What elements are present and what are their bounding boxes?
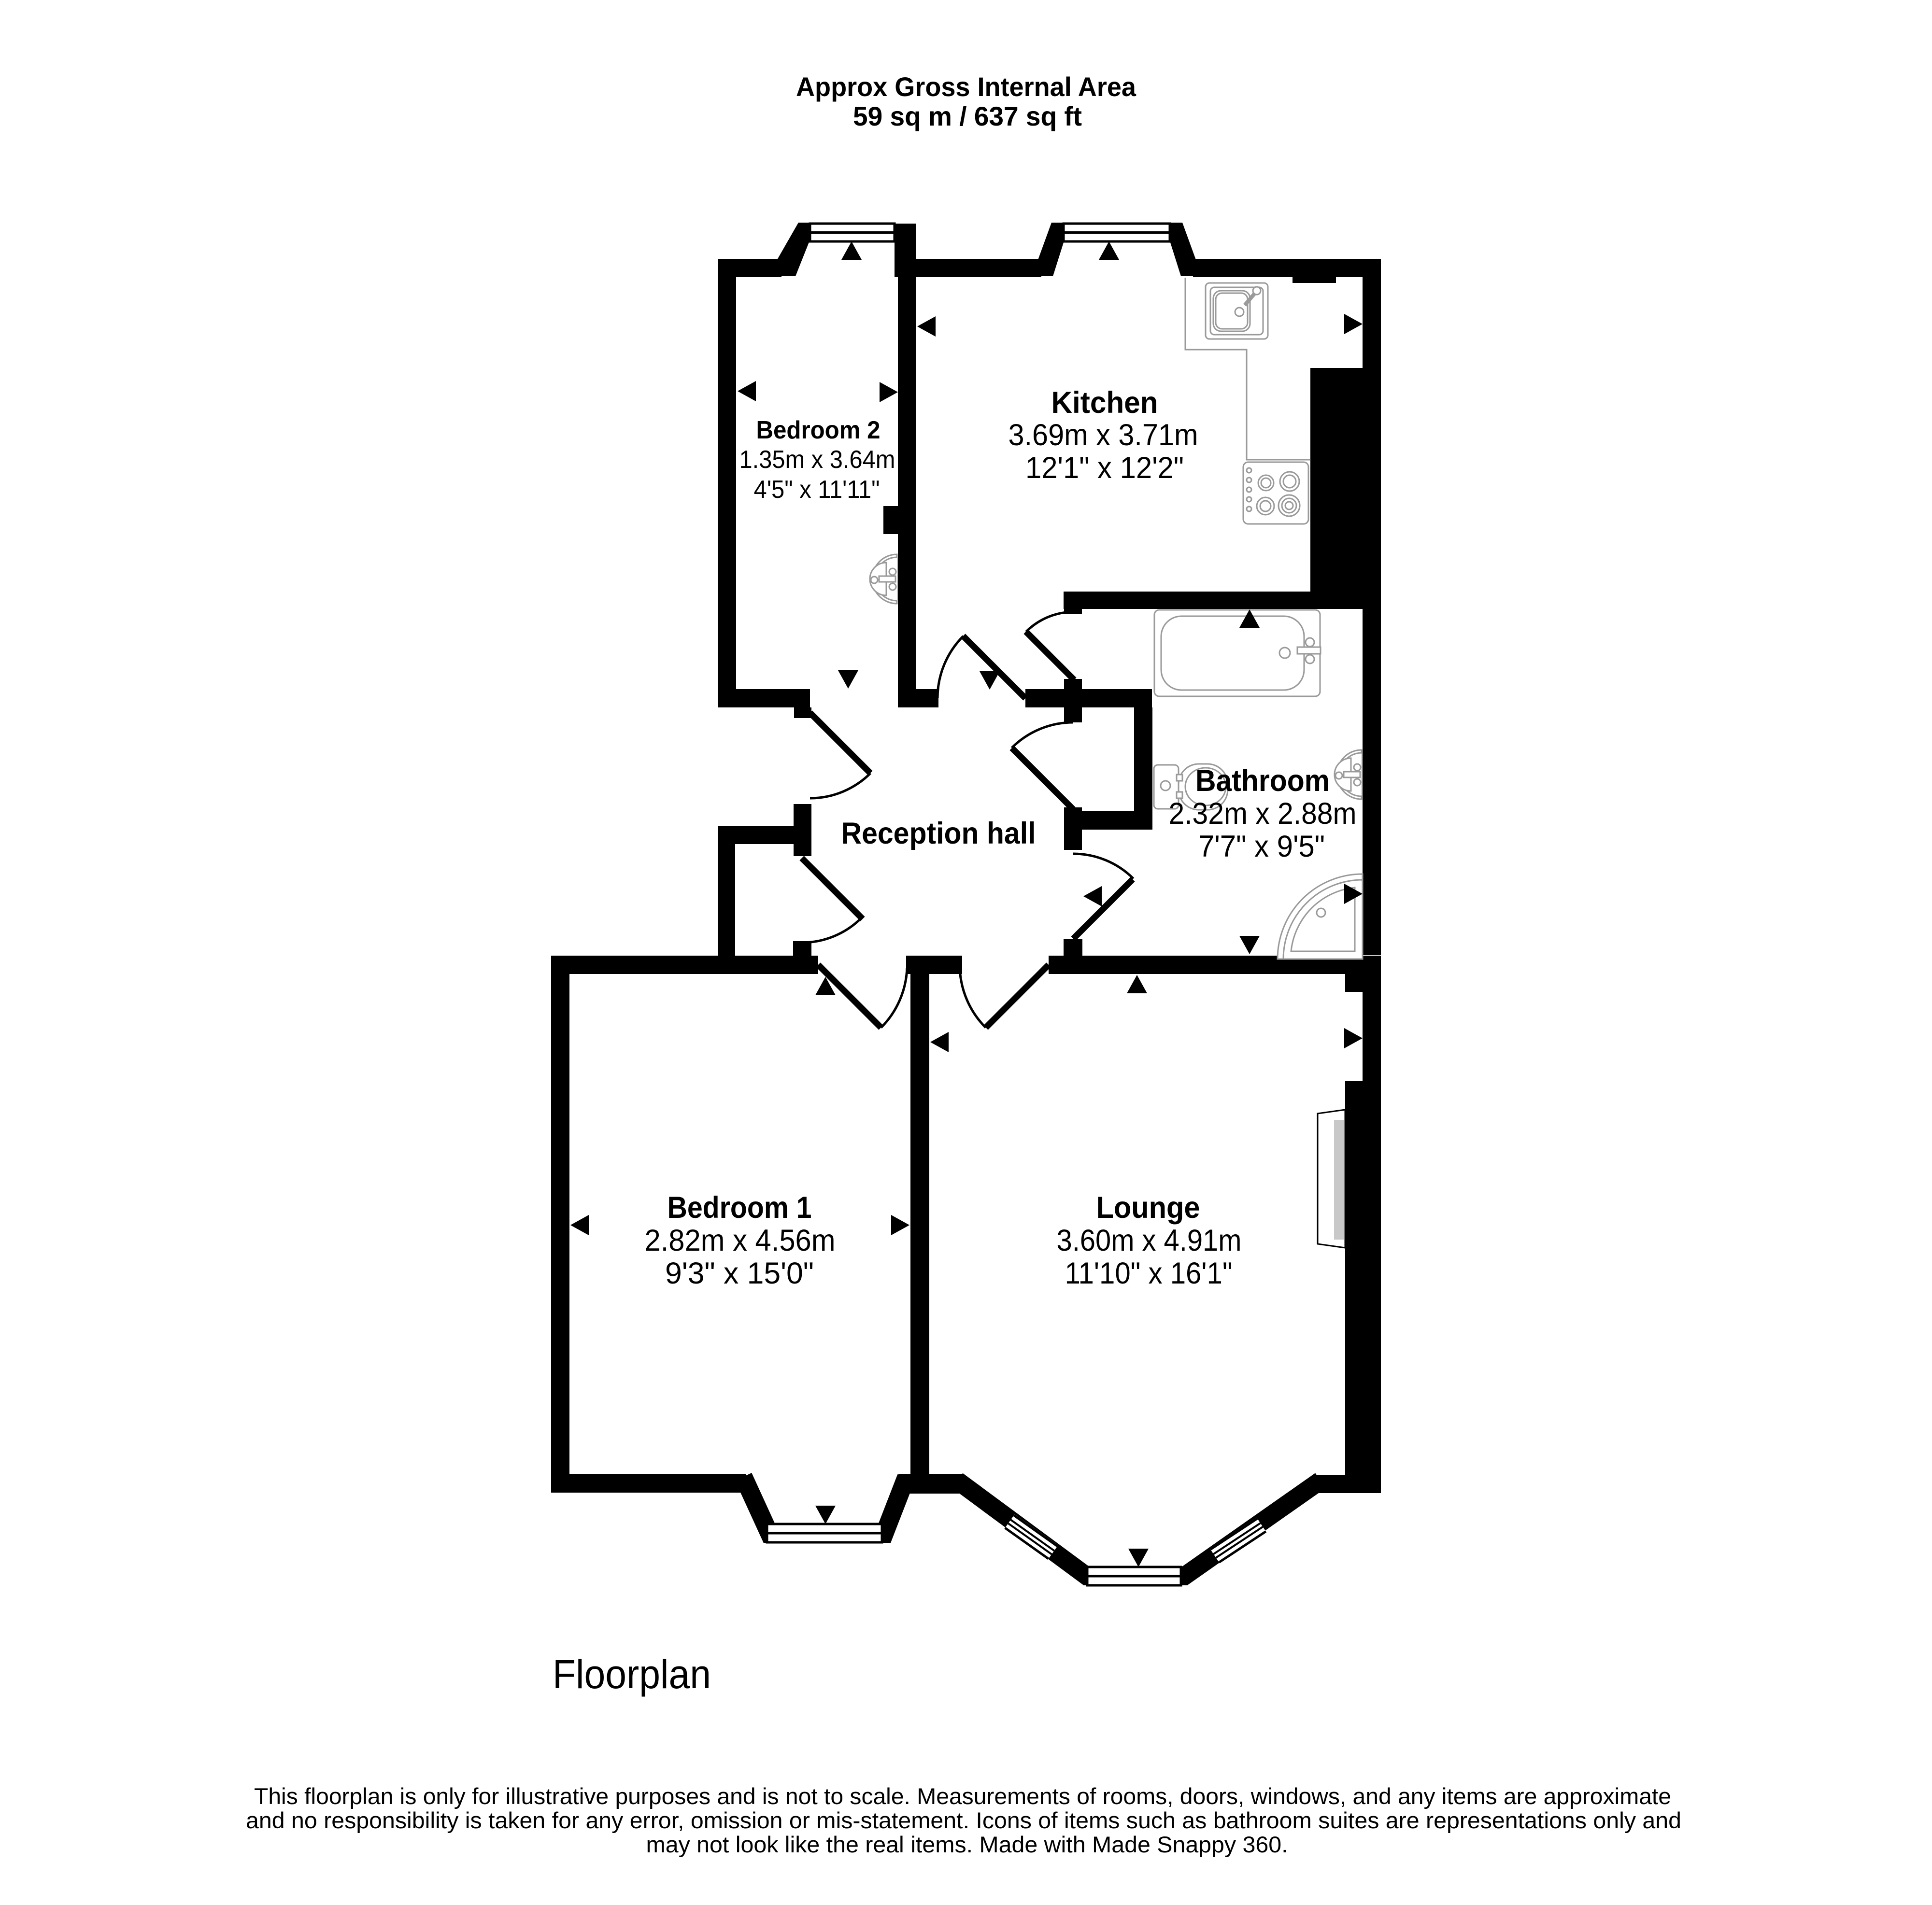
svg-text:2.32m x 2.88m: 2.32m x 2.88m xyxy=(1169,797,1357,831)
svg-text:59 sq m / 637 sq ft: 59 sq m / 637 sq ft xyxy=(853,101,1082,131)
svg-text:Kitchen: Kitchen xyxy=(1051,386,1158,420)
svg-text:12'1" x 12'2": 12'1" x 12'2" xyxy=(1025,451,1184,485)
svg-text:4'5" x 11'11": 4'5" x 11'11" xyxy=(754,476,880,504)
svg-text:Reception hall: Reception hall xyxy=(841,817,1036,850)
svg-text:This floorplan is only for ill: This floorplan is only for illustrative … xyxy=(254,1783,1671,1809)
svg-text:3.69m x 3.71m: 3.69m x 3.71m xyxy=(1009,418,1198,452)
svg-text:Bedroom 2: Bedroom 2 xyxy=(756,416,881,444)
svg-text:Lounge: Lounge xyxy=(1096,1191,1200,1225)
svg-text:2.82m x 4.56m: 2.82m x 4.56m xyxy=(645,1224,836,1257)
svg-text:9'3" x 15'0": 9'3" x 15'0" xyxy=(665,1256,814,1290)
svg-text:Bathroom: Bathroom xyxy=(1195,764,1330,798)
svg-text:Floorplan: Floorplan xyxy=(553,1651,711,1697)
svg-text:7'7" x 9'5": 7'7" x 9'5" xyxy=(1198,830,1325,863)
svg-text:3.60m x 4.91m: 3.60m x 4.91m xyxy=(1057,1224,1242,1257)
svg-text:1.35m x 3.64m: 1.35m x 3.64m xyxy=(739,446,895,474)
svg-text:may not look like the real ite: may not look like the real items. Made w… xyxy=(646,1832,1288,1857)
svg-text:Approx Gross Internal Area: Approx Gross Internal Area xyxy=(796,71,1136,102)
svg-text:Bedroom 1: Bedroom 1 xyxy=(668,1191,812,1225)
svg-text:and no responsibility is taken: and no responsibility is taken for any e… xyxy=(246,1807,1681,1833)
svg-text:11'10" x 16'1": 11'10" x 16'1" xyxy=(1065,1256,1233,1290)
